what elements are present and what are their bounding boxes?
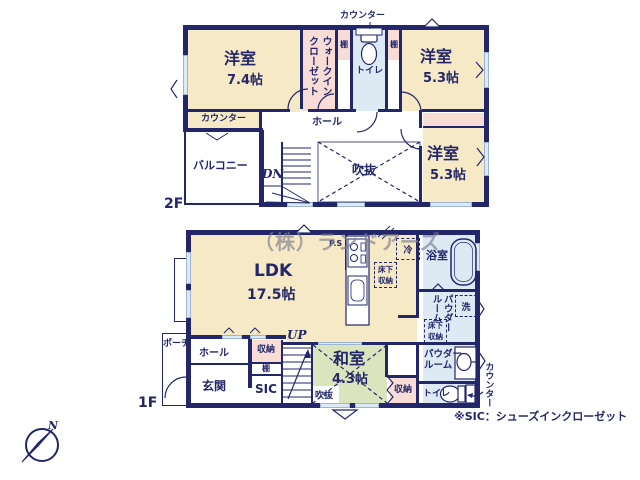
door-arc: [357, 112, 377, 132]
ldk-size: 17.5帖: [247, 287, 296, 303]
washitsu-size: 4.3帖: [332, 373, 368, 388]
room2-label: 洋室: [420, 48, 452, 66]
f2-room3-fill: [423, 128, 486, 203]
wall: [300, 28, 303, 109]
wall: [266, 335, 286, 339]
shelf-label: 棚: [390, 40, 398, 49]
window: [287, 202, 313, 207]
window: [183, 55, 188, 95]
ldk-label: LDK: [254, 262, 292, 282]
room3-label: 洋室: [427, 145, 459, 163]
sliding-door: [318, 342, 362, 345]
underfloor-label: 床下収納: [375, 264, 396, 286]
door-arc: [401, 129, 421, 149]
void1-label: 吹抜: [315, 391, 333, 401]
wall: [350, 28, 353, 109]
window: [430, 202, 472, 207]
wall: [385, 28, 388, 109]
wall: [259, 110, 262, 130]
shelf-label: 棚: [340, 40, 348, 49]
wall: [399, 28, 402, 109]
washer-label: 洗: [461, 300, 470, 313]
room1-label: 洋室: [224, 50, 256, 68]
window: [355, 403, 379, 408]
wall: [423, 126, 484, 128]
wall: [281, 340, 283, 405]
wall: [385, 345, 388, 377]
wall: [422, 109, 484, 112]
window: [337, 202, 365, 207]
genkan-label: 玄関: [202, 380, 226, 394]
shelf1-label: 棚: [262, 364, 270, 373]
counter-side-label: カウンター: [483, 362, 493, 412]
compass-north-label: N: [48, 420, 58, 433]
counter-desk-label: カウンター: [201, 114, 246, 124]
wall: [186, 109, 290, 112]
balcony-label: バルコニー: [193, 160, 248, 173]
underfloor-storage-box: 床下収納: [374, 262, 397, 288]
washer-box: 洗: [455, 295, 477, 317]
room1-size: 7.4帖: [227, 74, 263, 89]
stairs-up: [283, 348, 311, 397]
window: [484, 52, 489, 88]
window: [484, 142, 489, 176]
wall: [398, 315, 418, 318]
wall: [335, 28, 338, 109]
wall: [311, 342, 313, 405]
wall: [419, 381, 476, 384]
f2-room1-fill: [186, 28, 300, 112]
f2-room2-fill: [401, 28, 486, 111]
powder-h-label: パウダールーム: [424, 350, 466, 372]
wall: [416, 342, 419, 408]
bay-triangle: [333, 410, 357, 419]
powder-v-label: パウダールーム: [430, 294, 453, 334]
f2-room3-closet-fill: [423, 113, 486, 127]
counter-top-label: カウンター: [340, 11, 385, 21]
washitsu-label: 和室: [333, 350, 365, 368]
wall: [308, 109, 356, 112]
floor2-label: 2F: [164, 196, 183, 212]
sic-label: SIC: [255, 383, 277, 397]
window: [186, 252, 191, 284]
wall: [419, 289, 476, 292]
dn-label: DN: [262, 168, 283, 182]
wall: [191, 363, 248, 365]
wall: [419, 146, 422, 204]
toilet2-label: トイレ: [356, 66, 383, 76]
stairs-up-arrowhead: [304, 349, 311, 358]
window: [320, 403, 350, 408]
chevron-mark: [171, 80, 177, 98]
wall: [252, 374, 283, 376]
washitsu-closet-label: 収納: [394, 385, 412, 395]
compass-icon: [22, 429, 58, 462]
window: [222, 335, 242, 339]
wic-label: ウォークインクローゼット: [305, 36, 332, 100]
window: [475, 243, 480, 271]
window: [250, 335, 266, 339]
floorplan: 冷 床下収納 洗 床下収納: [0, 0, 640, 480]
window: [186, 290, 191, 318]
floor1-label: 1F: [138, 395, 157, 411]
hall2-label: ホール: [312, 117, 342, 129]
wall: [191, 335, 222, 339]
stairs-up-arrow: [288, 352, 307, 399]
room3-size: 5.3帖: [430, 169, 466, 184]
toilet1-label: トイレ: [423, 389, 450, 399]
up-label: UP: [287, 329, 307, 343]
wall: [387, 375, 418, 378]
void2-label: 吹抜: [352, 164, 376, 178]
hall-closet-label: 収納: [257, 345, 275, 355]
sic-note: ※SIC：シューズインクローゼット: [454, 411, 627, 424]
wall: [183, 128, 263, 132]
porch-label: ポーチ: [163, 339, 190, 349]
wall: [378, 109, 402, 112]
room2-size: 5.3帖: [423, 72, 459, 87]
hall1-label: ホール: [199, 348, 229, 360]
wall: [419, 110, 422, 128]
watermark: （株）ランドアーズ: [254, 226, 441, 255]
